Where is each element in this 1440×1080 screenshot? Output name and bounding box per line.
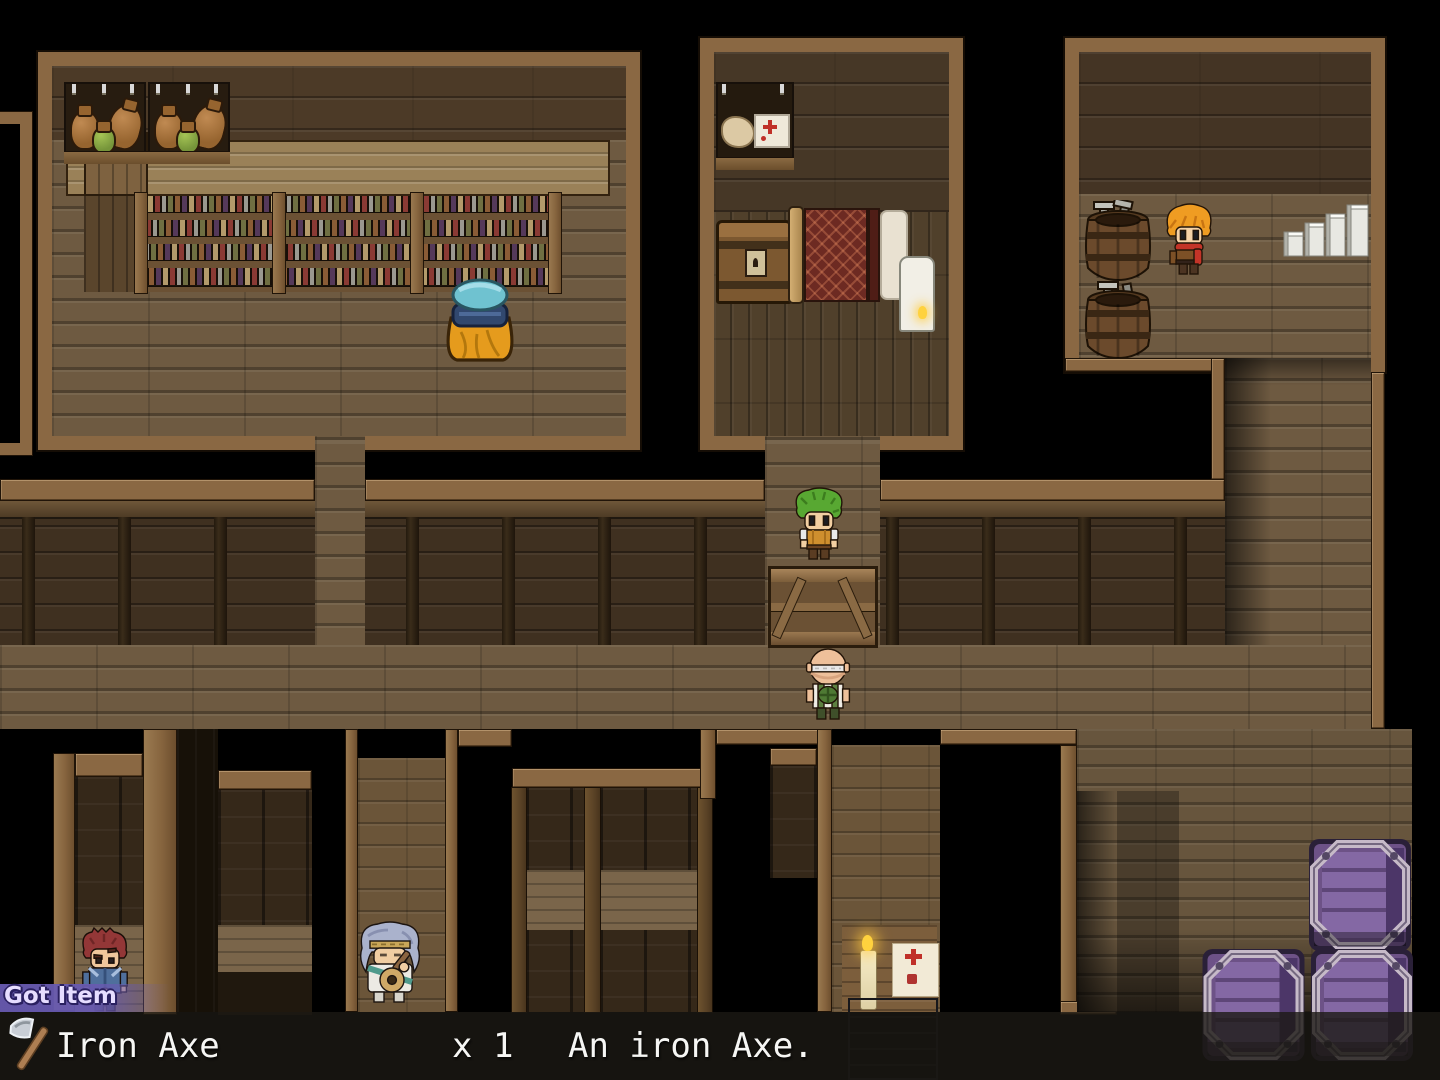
wall-top-trim (458, 729, 512, 747)
wooden-counter-crate[interactable] (768, 566, 878, 648)
room-left-partial (0, 112, 32, 455)
wall-top-trim (218, 770, 312, 790)
corridor-wall (0, 501, 1225, 645)
hook-icon (72, 84, 76, 93)
bottle-row (286, 244, 410, 268)
bottle-shelf (286, 196, 410, 292)
item-message-bar: Iron Axe x 1 An iron Axe. (0, 1012, 1440, 1080)
room-armory (1065, 38, 1385, 372)
wall-base (600, 870, 698, 930)
wall-beam (1078, 517, 1091, 645)
wall-beam (982, 517, 995, 645)
wall-base (526, 870, 585, 930)
character-old-bard[interactable] (352, 920, 428, 1014)
treasure-chest[interactable] (716, 220, 792, 304)
hook-icon (102, 84, 106, 93)
paper-notice[interactable] (892, 943, 939, 997)
shelf-pillar (134, 192, 148, 294)
wall-beam (502, 517, 515, 645)
hook-icon (130, 84, 134, 93)
wall-footer (218, 972, 312, 1015)
bed-post (788, 206, 804, 304)
character-green-haired-villager[interactable] (791, 486, 847, 566)
lower-room-wall (770, 748, 817, 878)
lower-room-wall (218, 770, 312, 1015)
hook-icon (722, 84, 726, 93)
hook-icon (780, 84, 784, 93)
green-pot (176, 126, 200, 154)
shelf-pillar (272, 192, 286, 294)
bottle-row (424, 196, 548, 220)
wall-base (218, 925, 312, 972)
flame-icon (862, 935, 873, 951)
red-dot (761, 136, 766, 141)
bed-blanket-edge (868, 208, 880, 302)
bottle-row (148, 196, 272, 220)
wall-beam (214, 517, 227, 645)
bedside-lamp (899, 256, 935, 332)
chest-band (719, 241, 789, 249)
corridor-floor (0, 645, 1371, 729)
green-pot (92, 126, 116, 154)
wall-beam (694, 517, 707, 645)
hook-icon (186, 84, 190, 93)
doorway-shop-to-corridor[interactable] (315, 436, 365, 645)
hallway-right-frame (1371, 372, 1385, 729)
character-bald-craftsman[interactable] (799, 645, 857, 727)
bottle-row (424, 220, 548, 244)
wall-beam (598, 517, 611, 645)
shelf-board (64, 152, 230, 164)
wall-post (698, 788, 712, 1012)
purple-crate[interactable] (1308, 838, 1412, 952)
hook-icon (214, 84, 218, 93)
wall-face (770, 766, 817, 878)
door-post (817, 729, 832, 1012)
tool-barrel[interactable] (1080, 200, 1156, 282)
crate-rail (771, 569, 875, 582)
shelf-pillar (548, 192, 562, 294)
door-post (700, 729, 716, 799)
wall-beam (1174, 517, 1187, 645)
wall-top-trim (770, 748, 817, 766)
medicine-box (754, 114, 790, 148)
item-name: Iron Axe (56, 1026, 220, 1066)
bottle-row (424, 244, 548, 268)
chest-band (719, 281, 789, 289)
wall-top-trim (512, 768, 712, 788)
front-pillar (143, 729, 177, 1015)
tool-barrel[interactable] (1080, 280, 1156, 360)
pot-shelf (64, 82, 230, 164)
axe-icon (6, 1014, 58, 1076)
hook-icon (156, 84, 160, 93)
bottle-row (148, 268, 272, 292)
wall-face (218, 790, 312, 925)
wall-beam (22, 517, 35, 645)
got-item-popup: Got Item (0, 984, 170, 1012)
wall-beam (886, 517, 899, 645)
white-stairs[interactable] (1282, 196, 1370, 262)
door-post (1060, 745, 1077, 1003)
wall-face (75, 777, 143, 925)
corridor-top-frame (365, 479, 765, 501)
wall-top-trim (940, 729, 1077, 745)
herb-bundle (721, 116, 755, 148)
bottle-row (286, 268, 410, 292)
armory-bottom-frame (1065, 358, 1225, 372)
wall-post (585, 788, 600, 1012)
chest-lock (745, 249, 767, 277)
wall-beam (406, 517, 419, 645)
got-item-label: Got Item (4, 983, 117, 1009)
candle-alcove (832, 745, 940, 1012)
game-screen: Got Item Iron Axe x 1 An iron Axe. (0, 0, 1440, 1080)
corridor-top-frame (0, 479, 315, 501)
supply-sack[interactable] (437, 272, 523, 364)
red-mark (907, 974, 917, 984)
room-bedroom (700, 38, 963, 450)
armory-corner-frame (1211, 358, 1225, 480)
armory-back-wall (1079, 52, 1371, 194)
hallway-top-shadow (1225, 358, 1371, 386)
bottle-row (148, 244, 272, 268)
flame-icon (918, 306, 927, 319)
hallway-shadow (1225, 358, 1271, 645)
shelf-board (716, 158, 794, 170)
bed-blanket (804, 208, 868, 302)
corridor-wall-rail (0, 501, 1225, 517)
crate-rail (771, 632, 875, 645)
keyhole-icon (753, 258, 758, 267)
supply-wall-shelf (716, 82, 794, 170)
shelf-pillar (410, 192, 424, 294)
bottle-row (286, 196, 410, 220)
item-description: An iron Axe. (568, 1026, 814, 1066)
corridor-top-frame (880, 479, 1225, 501)
red-cross-icon (763, 125, 777, 129)
bottle-shelf (148, 196, 272, 292)
bottle-row (148, 220, 272, 244)
door-post (53, 753, 75, 1011)
red-cross-icon (905, 954, 922, 959)
door-post (445, 729, 458, 1012)
character-orange-haired-hero[interactable] (1162, 202, 1216, 280)
item-quantity: x 1 (452, 1026, 513, 1066)
lower-middle-room-wall (512, 768, 712, 1012)
wall-beam (118, 517, 131, 645)
wall-top-trim (716, 729, 832, 745)
bed (788, 206, 912, 306)
shadowed-gap (177, 729, 218, 1012)
room-shop-storage (38, 52, 640, 450)
wall-post (512, 788, 526, 1012)
bottle-row (286, 220, 410, 244)
wall-top-trim (75, 753, 143, 777)
